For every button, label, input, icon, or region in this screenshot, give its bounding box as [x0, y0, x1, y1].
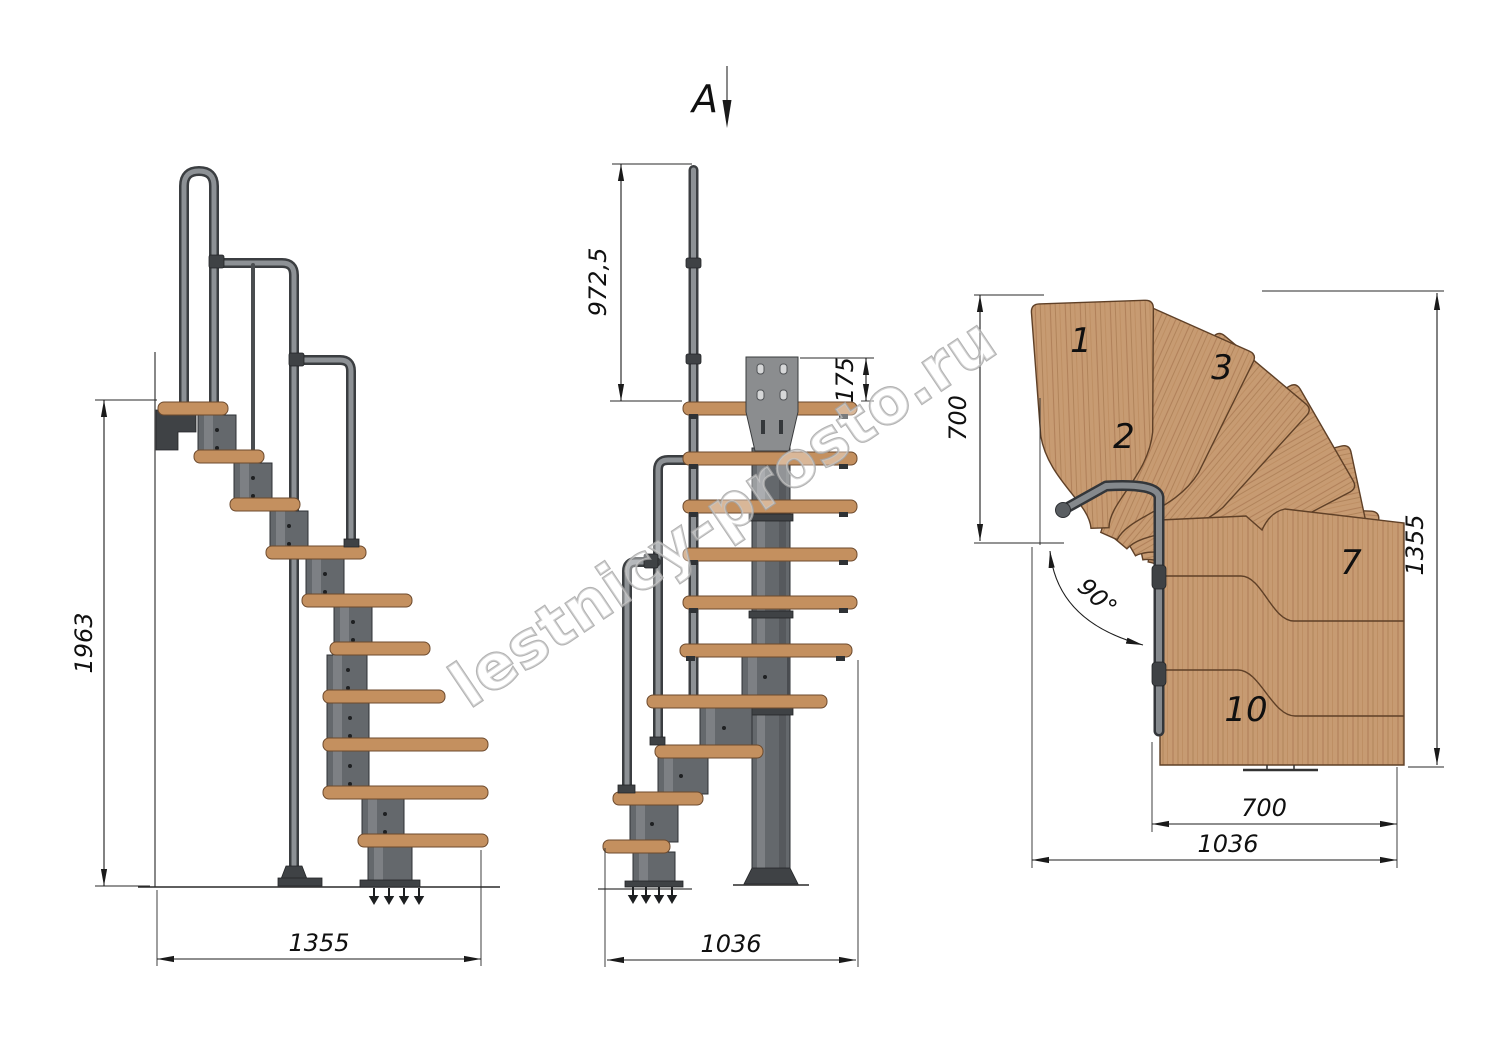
tread	[266, 546, 366, 559]
dim-label-1036-plan: 1036	[1197, 830, 1258, 858]
base-column-highlight	[374, 846, 383, 882]
rail-clamp	[686, 258, 701, 268]
support-modules	[198, 415, 404, 846]
tread	[603, 840, 670, 853]
tread	[683, 596, 857, 609]
column-joint	[749, 611, 793, 618]
tread-number-2: 2	[1113, 417, 1135, 457]
rail-clamp	[209, 255, 224, 268]
tread	[230, 498, 300, 511]
module	[658, 757, 708, 794]
tread-number-3: 3	[1211, 348, 1233, 388]
handrail-run-2	[216, 263, 294, 866]
base-plate	[360, 880, 420, 887]
tread-number-10: 10	[1224, 690, 1267, 730]
base-plate	[625, 881, 683, 887]
tread	[613, 792, 703, 805]
rail-mount	[618, 785, 635, 793]
dim-label-700-bottom: 700	[1241, 794, 1287, 822]
tread	[647, 695, 827, 708]
floor-bracket	[1243, 765, 1318, 770]
rail-joint	[1152, 662, 1166, 686]
rail-clamp	[289, 353, 304, 366]
tread	[302, 594, 412, 607]
dim-label-1355: 1355	[288, 929, 349, 957]
wall-bracket	[156, 410, 196, 450]
column-base-flare	[744, 868, 798, 884]
plate-hole	[780, 390, 787, 400]
rail-clamp	[686, 354, 701, 364]
rail-foot-plate	[278, 878, 322, 886]
plate-slot	[761, 420, 765, 434]
rail-mount	[344, 539, 359, 547]
side-elevation-view: 1963 1355	[70, 171, 500, 966]
angle-label: 90°	[1072, 572, 1122, 621]
rail-foot	[281, 866, 307, 879]
plate-hole	[757, 364, 764, 374]
module	[630, 805, 678, 842]
tread	[323, 738, 488, 751]
tread	[680, 644, 852, 657]
tread	[655, 745, 763, 758]
module	[633, 852, 675, 883]
rail-joint	[1152, 565, 1166, 589]
dim-label-1036: 1036	[700, 930, 761, 958]
handrail-post	[686, 170, 701, 700]
tread	[330, 642, 430, 655]
treads	[158, 402, 488, 847]
tread	[323, 690, 445, 703]
module	[742, 657, 788, 697]
handrail-loop-outer	[184, 171, 214, 404]
tread	[194, 450, 264, 463]
dimension-side-height: 1963	[70, 400, 157, 886]
plate-hole	[780, 364, 787, 374]
straight-flight-block	[1160, 509, 1404, 765]
dimension-handrail-height: 972,5	[584, 164, 692, 401]
tread	[158, 402, 228, 415]
anchor-bolts	[371, 888, 423, 903]
dim-label-972-5: 972,5	[584, 248, 612, 317]
column-joint	[749, 708, 793, 715]
dimension-side-width: 1355	[157, 850, 481, 966]
blueprint-page: A	[0, 0, 1500, 1061]
tread-number-7: 7	[1340, 543, 1362, 583]
rail-end-cap	[1056, 503, 1071, 518]
dim-label-1963: 1963	[70, 612, 98, 673]
section-arrow-icon	[723, 100, 732, 128]
tread-number-1: 1	[1070, 321, 1092, 361]
plan-view: 700 1355 700 1036 90° 1 2	[944, 291, 1444, 868]
staircase-drawing: A	[0, 0, 1500, 1061]
tread	[358, 834, 488, 847]
rail-mount	[650, 737, 665, 745]
turn-angle-annotation: 90°	[1050, 551, 1143, 645]
plate-hole	[757, 390, 764, 400]
section-marker: A	[689, 66, 732, 128]
module	[700, 708, 752, 747]
watermark-text: lestnicy-prosto.ru	[437, 303, 1009, 722]
section-label: A	[689, 77, 718, 121]
tread	[323, 786, 488, 799]
dim-label-1355-plan: 1355	[1401, 514, 1429, 575]
handrail-loop	[184, 171, 214, 404]
